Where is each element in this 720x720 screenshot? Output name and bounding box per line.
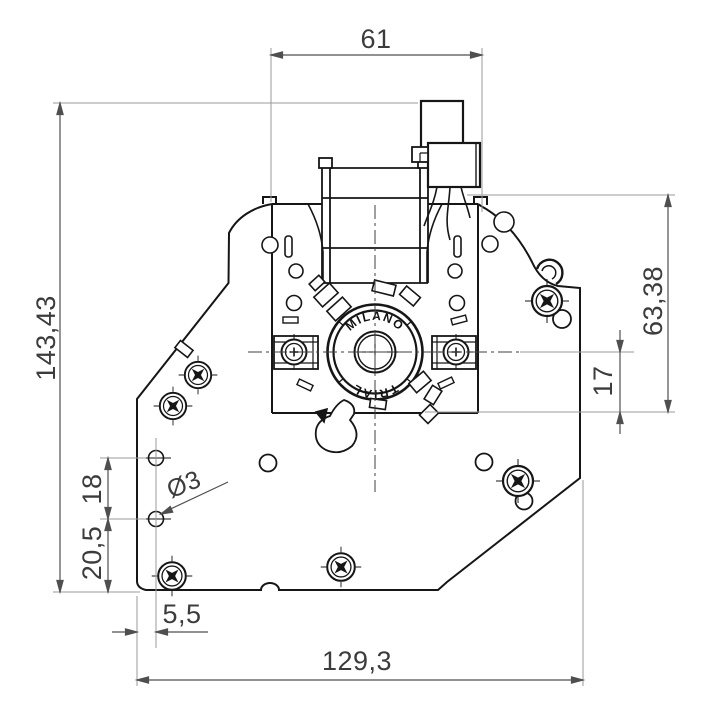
bracket-cheek-left [308,204,323,283]
dim-label-hole-pitch: 18 [77,473,107,504]
plate-hole-topright [494,212,514,232]
bracket-hslot-right [451,315,467,325]
dim-label-hole-diameter: Ø3 [163,465,205,504]
dim-label-center-offset: 17 [588,365,618,396]
terminal-box [412,101,480,240]
spring-hook-inner [542,266,556,279]
bracket-hole [287,296,302,311]
pozi-screw-icon [321,547,361,587]
bracket-hole [289,264,303,278]
pozi-screw-icon [496,459,540,503]
terminal-box-lower [428,143,480,187]
technical-drawing: MILANO TRIAL [0,0,720,720]
ear-slot-left [297,379,313,391]
dim-label-motor-height: 63,38 [638,266,668,336]
pozi-screw-icon [179,356,218,395]
bracket-hslot-left [283,317,298,323]
hole-plain [476,454,493,471]
dim-hole-edge-offset [112,629,208,635]
lever-arm [316,400,357,452]
drawing-canvas: MILANO TRIAL [0,0,720,720]
dim-label-overall-height: 143,43 [31,295,61,381]
dim-label-hole-edge-offset: 5,5 [162,599,201,629]
bracket-slot-right [454,236,461,257]
pozi-screw-icon [154,387,193,426]
dim-label-hole-base-offset: 20,5 [77,526,107,581]
stack-cap-left [319,158,332,168]
bracket-cheek-right [427,204,442,283]
ear-slot-right [438,377,454,389]
plate-tab-left [263,197,276,204]
plate-edge-tab [175,341,193,358]
bracket-hole [450,296,465,311]
dim-overall-width [137,677,583,683]
dim-label-top-width: 61 [360,24,391,54]
terminal-box-upper [421,101,463,148]
bracket-bump-left [262,237,278,253]
spring-hook-icon [537,260,562,284]
bracket-bump-right [482,236,498,252]
dim-label-overall-width: 129,3 [322,646,392,676]
bracket-hole [448,264,462,278]
bracket-slot-left [285,236,292,257]
hole-plain [260,455,277,472]
